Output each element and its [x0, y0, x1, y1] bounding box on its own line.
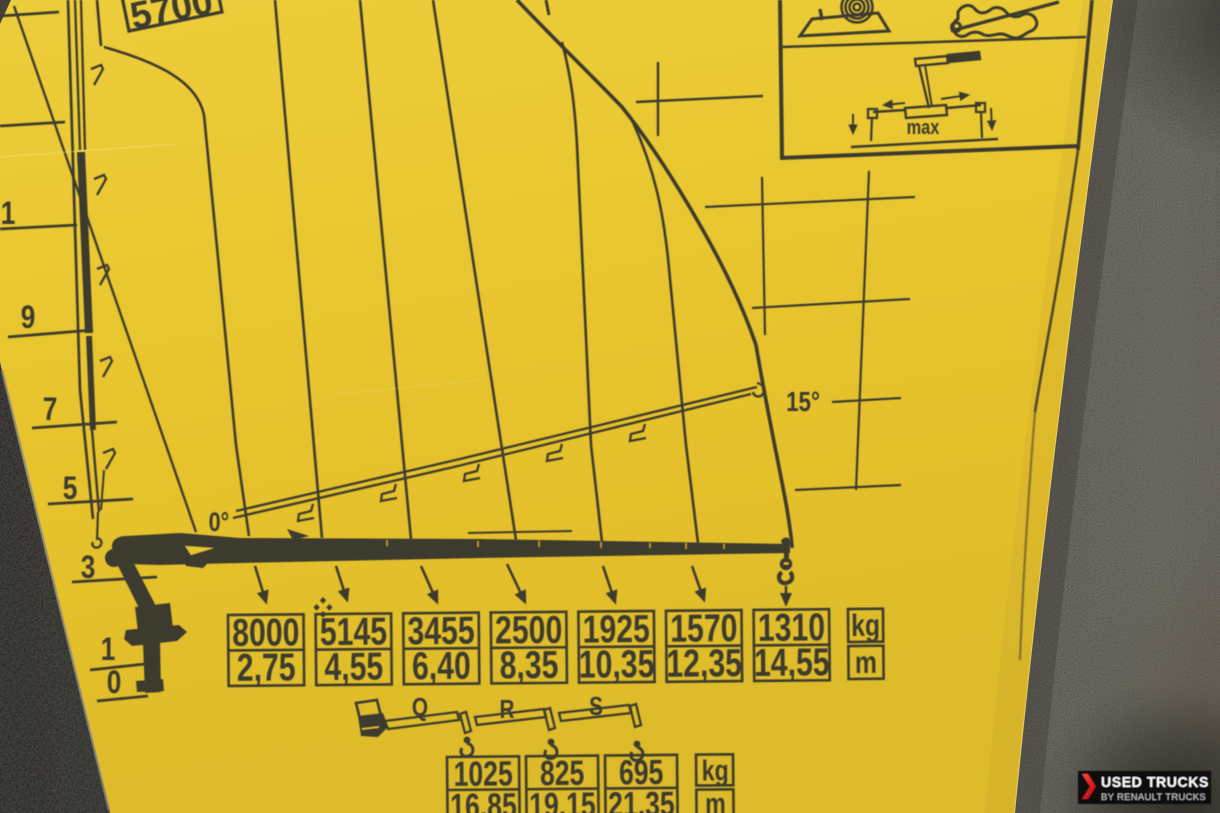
svg-text:21,35: 21,35: [608, 784, 675, 813]
svg-text:5: 5: [63, 472, 78, 507]
svg-text:16,85: 16,85: [450, 786, 517, 813]
svg-text:10,35: 10,35: [579, 642, 655, 686]
svg-text:2,75: 2,75: [237, 646, 296, 690]
svg-text:1: 1: [101, 633, 116, 668]
svg-text:8,35: 8,35: [499, 643, 558, 687]
svg-text:kg: kg: [851, 608, 880, 643]
svg-text:12,35: 12,35: [666, 641, 742, 685]
svg-text:m: m: [855, 645, 877, 679]
svg-text:kg: kg: [701, 754, 728, 787]
svg-text:3: 3: [81, 551, 96, 586]
svg-text:1: 1: [1, 197, 16, 232]
svg-text:BY RENAULT TRUCKS: BY RENAULT TRUCKS: [1101, 792, 1206, 803]
svg-text:R: R: [499, 695, 514, 724]
svg-text:0°: 0°: [209, 508, 230, 538]
svg-text:9: 9: [21, 301, 36, 336]
svg-text:4,55: 4,55: [324, 645, 383, 689]
svg-text:max: max: [907, 115, 941, 138]
svg-text:USED TRUCKS: USED TRUCKS: [1101, 774, 1209, 791]
svg-text:15°: 15°: [786, 387, 820, 418]
svg-text:m: m: [705, 787, 726, 813]
svg-text:7: 7: [43, 393, 58, 428]
svg-text:14,55: 14,55: [754, 641, 830, 685]
svg-text:6,40: 6,40: [412, 644, 471, 688]
svg-text:19,15: 19,15: [529, 785, 596, 813]
svg-text:0: 0: [107, 666, 122, 701]
